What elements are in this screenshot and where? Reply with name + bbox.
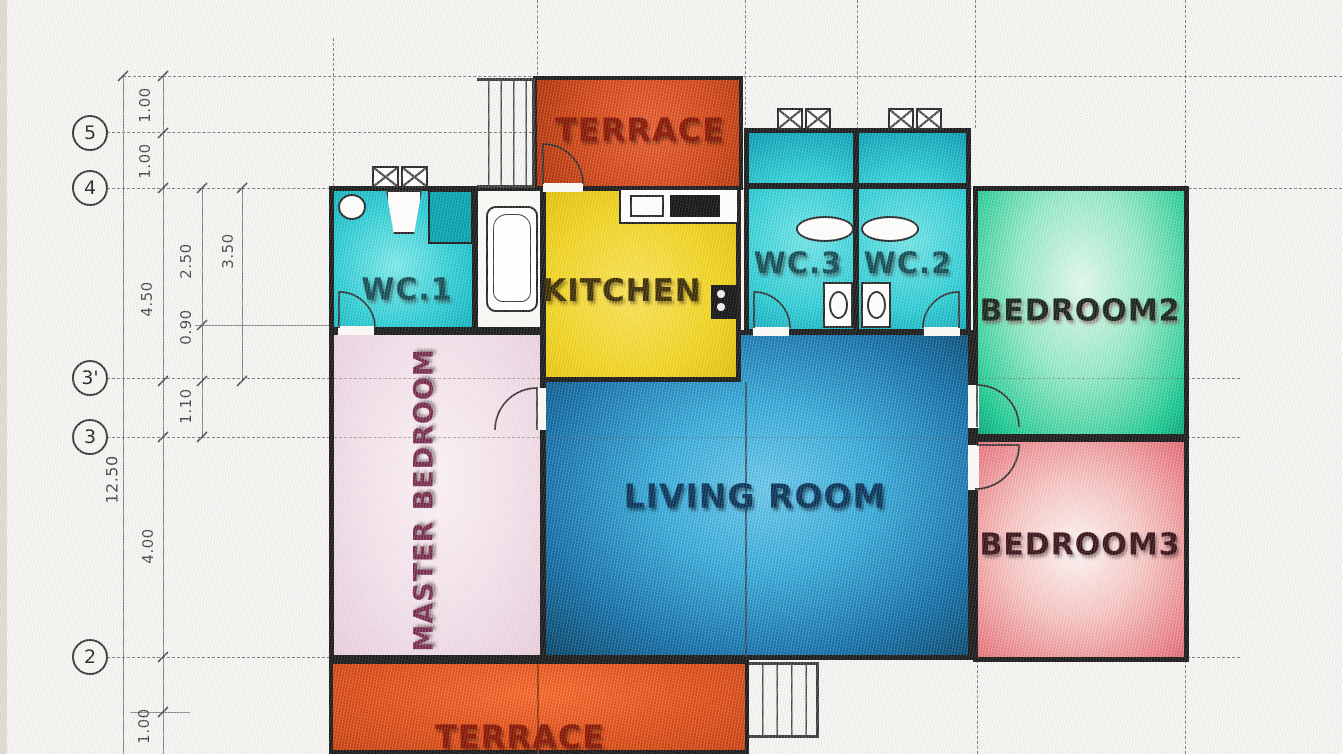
room-bedroom3-label: BEDROOM3 <box>979 528 1180 563</box>
floor-plan: 5 4 3' 3 2 1.00 1.00 4.50 3.50 2.50 0.90… <box>0 0 1342 754</box>
door-arc-bedroom2 <box>977 385 1019 427</box>
door-arc-wc3 <box>754 292 790 328</box>
room-master-bedroom-label: MASTER BEDROOM <box>409 348 440 651</box>
door-arc-bedroom3 <box>975 445 1019 489</box>
dimension-ticks <box>118 71 247 717</box>
door-arc-master-bedroom <box>495 388 537 430</box>
room-terrace-bottom-label: TERRACE <box>435 718 605 754</box>
room-kitchen-label: KITCHEN <box>542 273 702 309</box>
door-arc-kitchen-entry <box>543 144 583 184</box>
room-wc3-label: WC.3 <box>754 246 842 280</box>
room-living-room-label: LIVING ROOM <box>624 477 887 516</box>
room-wc1-label: WC.1 <box>361 273 452 308</box>
room-bedroom2-label: BEDROOM2 <box>979 294 1180 329</box>
door-arc-wc2 <box>923 292 959 328</box>
room-terrace-top-label: TERRACE <box>555 111 725 149</box>
room-wc2-label: WC.2 <box>864 246 952 280</box>
